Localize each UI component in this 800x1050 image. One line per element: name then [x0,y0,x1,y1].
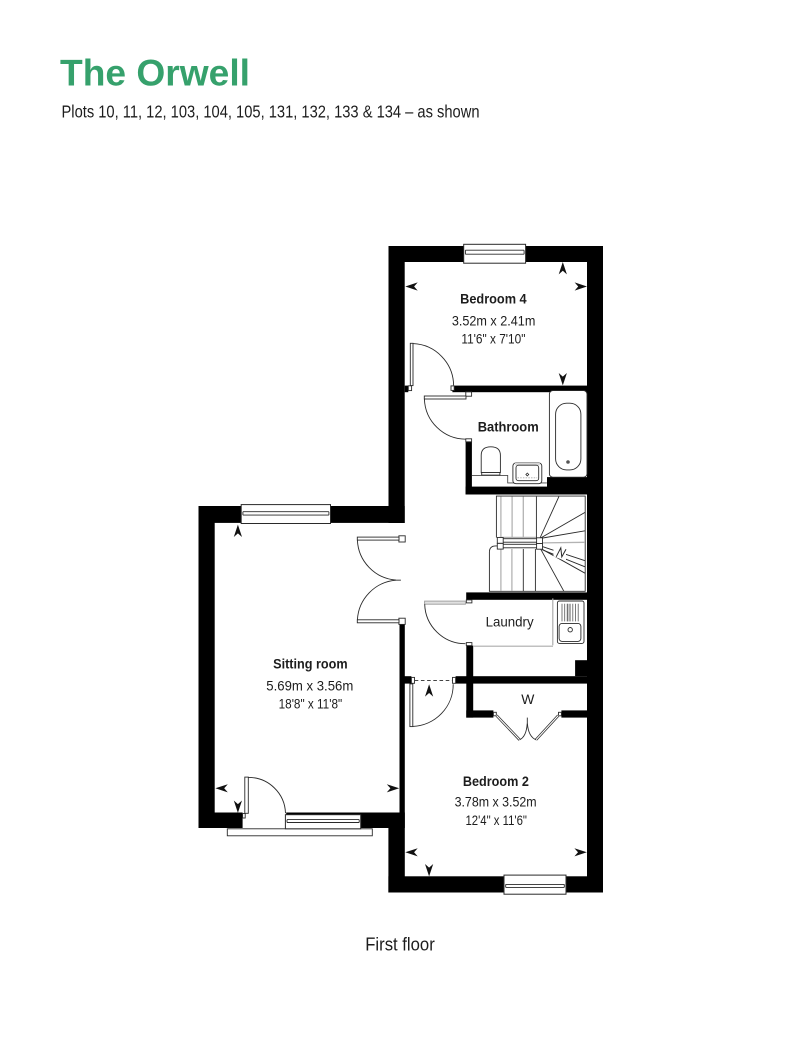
svg-text:3.52m x 2.41m: 3.52m x 2.41m [452,313,536,329]
svg-text:5.69m x 3.56m: 5.69m x 3.56m [266,677,353,693]
svg-text:12'4" x 11'6": 12'4" x 11'6" [465,812,527,828]
svg-text:11'6" x 7'10": 11'6" x 7'10" [461,330,525,346]
svg-text:W: W [521,691,535,707]
svg-text:18'8" x 11'8": 18'8" x 11'8" [279,696,343,712]
svg-text:Bathroom: Bathroom [478,419,539,434]
svg-text:The Orwell: The Orwell [60,52,250,93]
svg-text:First floor: First floor [365,935,435,955]
svg-text:Sitting room: Sitting room [273,656,348,671]
svg-text:Bedroom 2: Bedroom 2 [463,774,529,789]
svg-text:3.78m x 3.52m: 3.78m x 3.52m [455,793,537,809]
svg-text:Plots 10, 11, 12, 103, 104, 10: Plots 10, 11, 12, 103, 104, 105, 131, 13… [62,101,480,121]
svg-text:Laundry: Laundry [486,614,534,630]
svg-text:Bedroom 4: Bedroom 4 [460,292,527,307]
